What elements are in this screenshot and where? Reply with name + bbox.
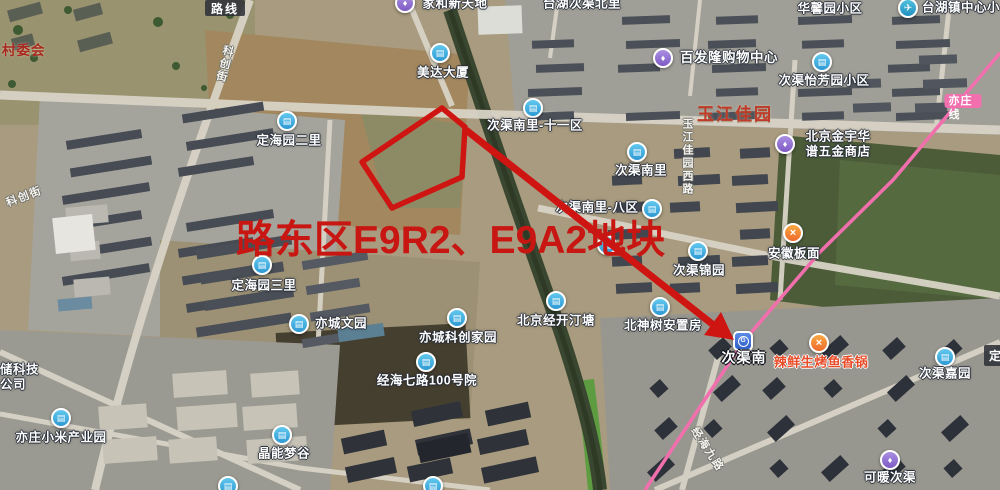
route-button[interactable]: 路线 — [205, 0, 245, 16]
annotation-arrow-head — [704, 312, 734, 340]
plot-annotation-text: 路东区E9R2、E9A2地块 — [236, 221, 665, 260]
satellite-map[interactable]: 村委会♦家和新天地台湖次渠北里华馨园小区✈台湖镇中心小▤美达大厦▤次渠南里-十一… — [0, 0, 1000, 490]
partial-map-button[interactable]: 定 — [984, 345, 1000, 366]
plot-outline-polygon — [362, 108, 465, 208]
